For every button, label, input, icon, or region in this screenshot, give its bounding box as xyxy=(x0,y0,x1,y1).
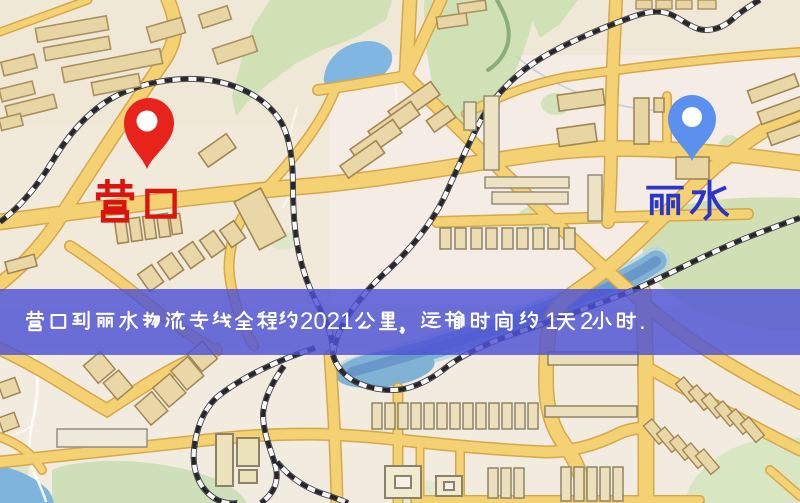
svg-text:2021: 2021 xyxy=(300,308,353,335)
svg-text:1: 1 xyxy=(545,308,558,335)
svg-text:.: . xyxy=(639,308,646,335)
svg-text:2: 2 xyxy=(580,308,593,335)
